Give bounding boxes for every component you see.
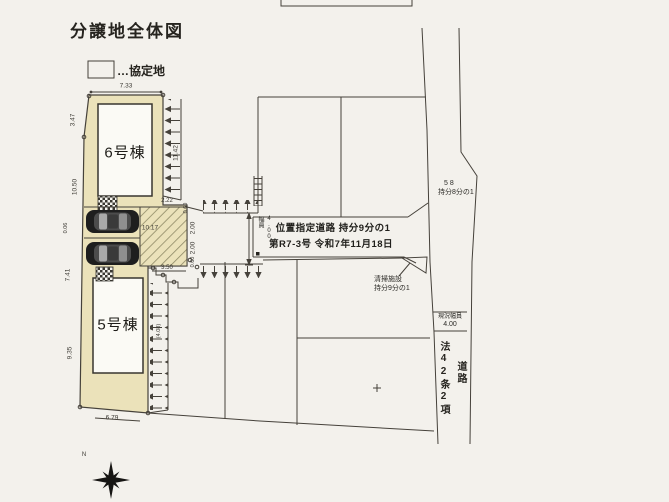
retaining-wall-east-of-lot5 bbox=[148, 283, 168, 413]
law-42-road-col2: 道路 bbox=[453, 361, 468, 431]
dim-east-1142: 11.42 bbox=[173, 145, 180, 161]
dim-left-1050: 10.50 bbox=[72, 179, 79, 195]
share-note: 5 8 持分8分の1 bbox=[438, 180, 474, 197]
dim-060b: 0.60 bbox=[190, 257, 196, 268]
dim-left-935: 9.35 bbox=[67, 347, 74, 360]
dim-1017: 10.17 bbox=[142, 225, 158, 232]
law-42-road-col1: 法42条2項 bbox=[436, 341, 451, 431]
dim-408: (4.08) bbox=[156, 324, 162, 338]
dim-left-347: 3.47 bbox=[70, 114, 77, 127]
dim-200b: 2.00 bbox=[190, 242, 197, 255]
site-plan-document: 分譲地全体図 …協定地 6号棟 5号棟 位置指定道路 持分9分の1 第R7-3号… bbox=[0, 0, 669, 502]
road-width-label: 幅員 bbox=[256, 216, 265, 260]
share-line1: 5 8 bbox=[438, 180, 474, 189]
building-6-label: 6号棟 bbox=[104, 142, 145, 163]
page-title: 分譲地全体図 bbox=[70, 17, 184, 42]
utility-box-6 bbox=[98, 196, 117, 211]
dim-200a: 2.00 bbox=[190, 222, 197, 235]
road-width-note: 幅員 4.00 bbox=[256, 216, 272, 260]
north-label: N bbox=[82, 452, 86, 458]
road-width-value: 4.00 bbox=[266, 216, 272, 260]
site-plan-canvas bbox=[0, 0, 669, 502]
cleaning-facility-line1: 清掃施設 bbox=[374, 276, 410, 285]
share-line2: 持分8分の1 bbox=[438, 189, 474, 198]
dim-left-741: 7.41 bbox=[65, 269, 72, 282]
current-width-label: 現況幅員 bbox=[434, 313, 466, 321]
current-width-note: 現況幅員 4.00 bbox=[434, 313, 466, 329]
car-icon bbox=[86, 210, 139, 233]
road-designation-line2: 第R7-3号 令和7年11月18日 bbox=[269, 236, 393, 250]
legend-label: …協定地 bbox=[117, 62, 165, 79]
dim-350: 3.50 bbox=[161, 265, 173, 271]
legend-hatch-swatch bbox=[88, 61, 114, 78]
road-designation-line1: 位置指定道路 持分9分の1 bbox=[276, 220, 391, 234]
corner-cut-triangle bbox=[402, 257, 427, 273]
top-neighbor-outline bbox=[281, 0, 412, 6]
agreement-area bbox=[140, 207, 187, 266]
car-icon bbox=[86, 242, 139, 265]
dim-060a: 0.60 bbox=[183, 203, 189, 214]
cleaning-facility-note: 清掃施設 持分9分の1 bbox=[374, 276, 410, 293]
law-42-road-label: 法42条2項 道路 bbox=[436, 341, 468, 431]
current-width-value: 4.00 bbox=[434, 321, 466, 329]
building-5-label: 5号棟 bbox=[97, 314, 138, 335]
dim-222: 2.22 bbox=[161, 198, 173, 204]
retaining-wall-top-row bbox=[187, 200, 258, 213]
utility-box-5 bbox=[96, 267, 113, 281]
dim-bottom-679: 6.79 bbox=[106, 415, 119, 422]
dim-left-006: 0.06 bbox=[63, 223, 69, 234]
cross-mark bbox=[373, 384, 381, 392]
north-parcels bbox=[254, 97, 426, 217]
cleaning-facility-line2: 持分9分の1 bbox=[374, 285, 410, 294]
dim-top: 7.33 bbox=[120, 83, 133, 90]
road-width-dimension-arrow bbox=[245, 212, 253, 266]
compass-icon bbox=[92, 461, 130, 499]
retaining-wall-south-row bbox=[200, 264, 263, 278]
leader-line bbox=[399, 263, 410, 276]
